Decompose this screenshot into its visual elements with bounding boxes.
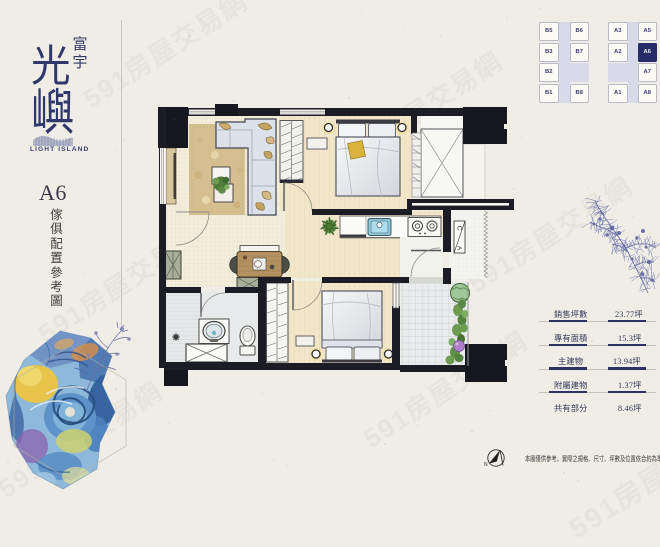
svg-text:N: N — [484, 462, 488, 468]
svg-text:A: A — [456, 246, 463, 251]
svg-text:C: C — [456, 226, 463, 231]
